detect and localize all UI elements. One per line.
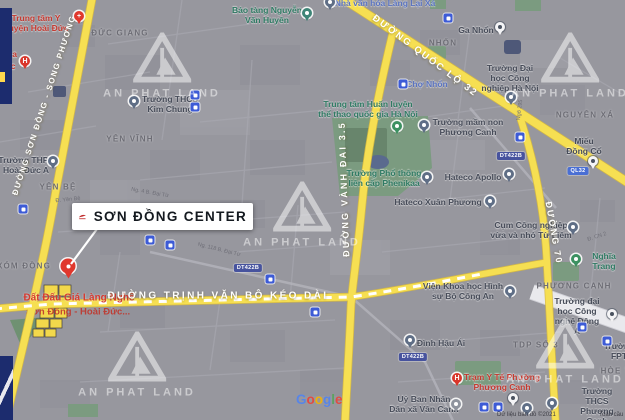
left-overlay-tick [0, 72, 5, 82]
map-attribution: Dữ liệu bản đồ ©2021 [497, 412, 556, 418]
map-terms-link[interactable]: Toàn cầu [599, 412, 623, 418]
bottom-left-overlay-strip [0, 356, 13, 420]
map-canvas[interactable]: Google Sơn Đồng - Hoài Đức... Đất Đấu Gi… [0, 0, 625, 420]
left-overlay-strip [0, 8, 12, 104]
ui-layer: Dữ liệu bản đồ ©2021 Toàn cầu [0, 0, 625, 420]
